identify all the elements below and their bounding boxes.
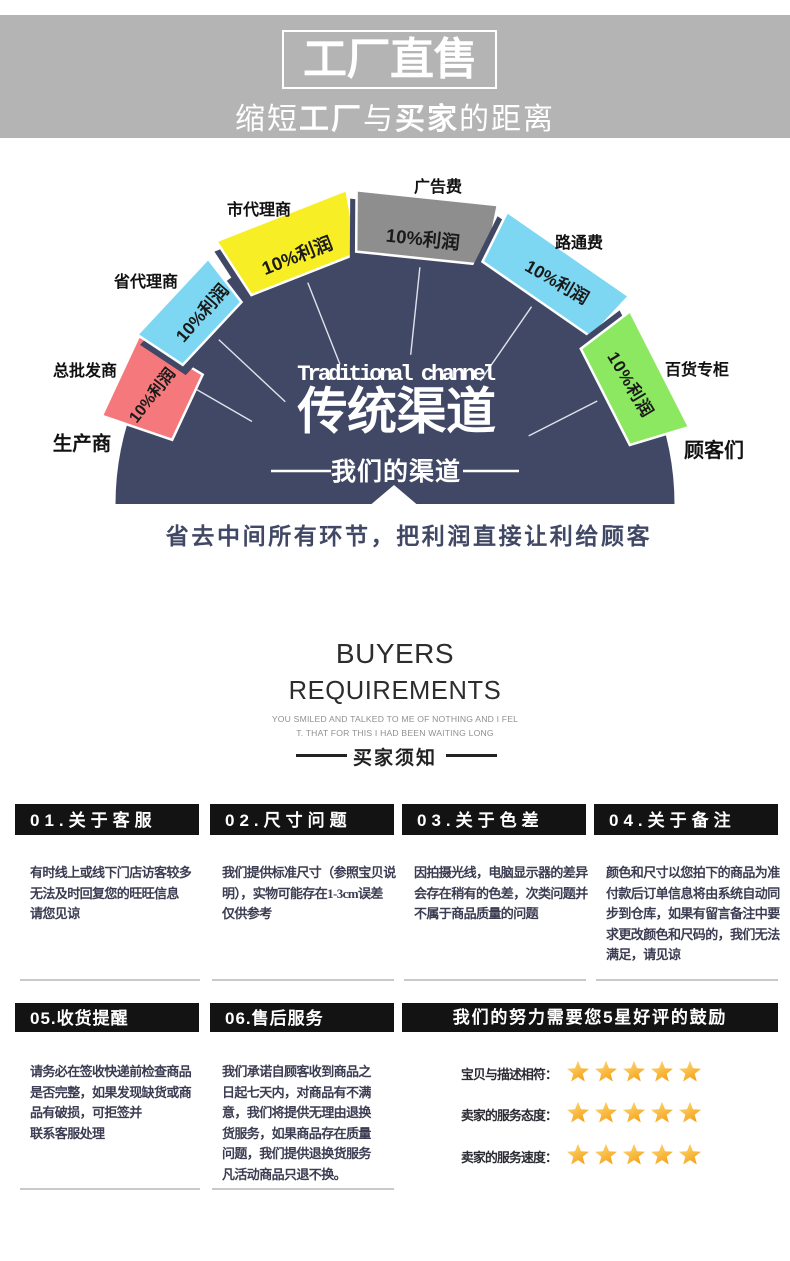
svg-text:百货专柜: 百货专柜 [665,360,729,379]
svg-text:顾客们: 顾客们 [684,438,744,462]
svg-text:省代理商: 省代理商 [113,272,178,291]
svg-text:广告费: 广告费 [414,177,462,196]
svg-text:生产商: 生产商 [53,432,112,455]
svg-text:总批发商: 总批发商 [53,361,117,380]
svg-text:传统渠道: 传统渠道 [297,384,496,440]
svg-text:我们的渠道: 我们的渠道 [331,457,461,486]
svg-text:市代理商: 市代理商 [227,200,291,219]
svg-text:路通费: 路通费 [555,233,603,252]
